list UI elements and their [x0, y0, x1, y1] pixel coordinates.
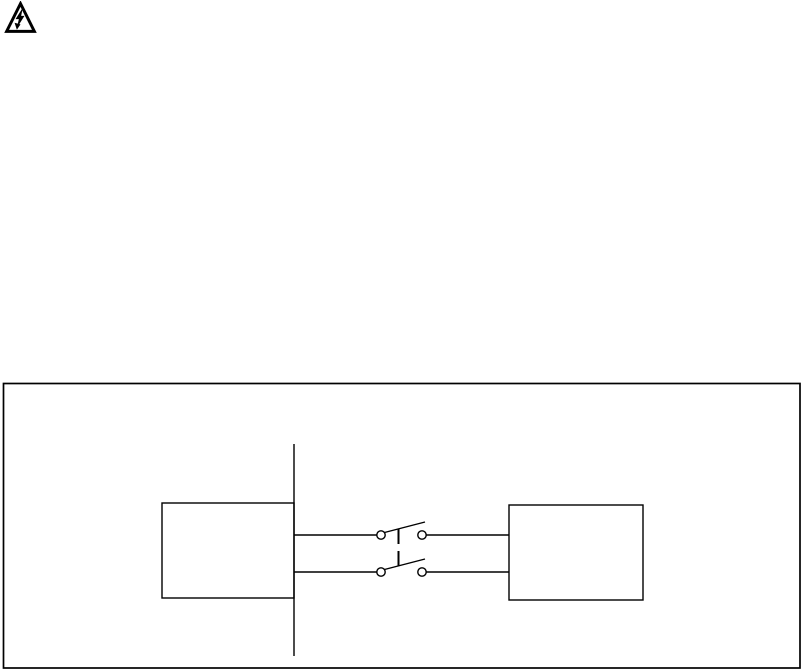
switch-blade-bottom: [385, 559, 426, 570]
figure-border: [4, 384, 801, 669]
right-device-box: [509, 505, 643, 600]
wiring-diagram-figure: [0, 0, 803, 672]
switch-terminal-top-right: [418, 531, 426, 539]
switch-blade-top: [385, 522, 426, 533]
circuit-diagram: [162, 444, 643, 656]
document-page: [0, 0, 803, 672]
switch-terminal-top-left: [377, 531, 385, 539]
switch-terminal-bottom-right: [418, 568, 426, 576]
switch-terminal-bottom-left: [377, 568, 385, 576]
left-device-box: [162, 503, 294, 598]
